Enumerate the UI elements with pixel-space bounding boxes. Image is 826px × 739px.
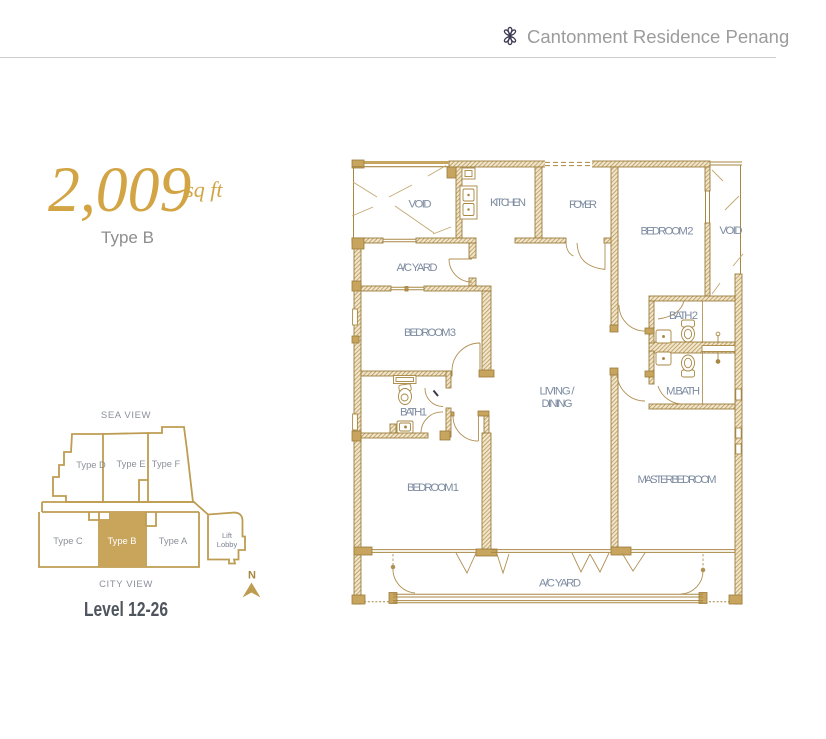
- svg-text:DINING: DINING: [542, 398, 573, 410]
- svg-text:Type F: Type F: [152, 459, 181, 469]
- svg-text:Type A: Type A: [159, 536, 188, 546]
- svg-text:Lift: Lift: [222, 531, 233, 540]
- svg-text:BEDROOM 3: BEDROOM 3: [404, 327, 456, 339]
- svg-text:BATH 2: BATH 2: [669, 310, 698, 322]
- svg-text:Type D: Type D: [76, 460, 106, 470]
- svg-text:Lobby: Lobby: [217, 540, 238, 549]
- svg-text:VOID: VOID: [409, 199, 432, 211]
- svg-text:N: N: [248, 570, 256, 582]
- svg-text:SEA VIEW: SEA VIEW: [101, 410, 151, 421]
- svg-text:BATH 1: BATH 1: [400, 407, 427, 419]
- svg-text:Type B: Type B: [108, 536, 137, 546]
- svg-text:M.BATH: M.BATH: [666, 386, 700, 398]
- svg-text:KITCHEN: KITCHEN: [490, 197, 526, 209]
- svg-text:A/C YARD: A/C YARD: [539, 578, 581, 590]
- svg-text:BEDROOM 1: BEDROOM 1: [407, 482, 459, 494]
- svg-text:A/C YARD: A/C YARD: [397, 262, 438, 274]
- svg-text:MASTERBEDROOM: MASTERBEDROOM: [638, 474, 717, 486]
- svg-text:LIVING /: LIVING /: [540, 386, 576, 398]
- svg-text:Type C: Type C: [53, 536, 83, 546]
- svg-text:Type E: Type E: [117, 459, 146, 469]
- svg-text:VOID: VOID: [720, 225, 743, 237]
- svg-text:FOYER: FOYER: [569, 199, 597, 211]
- svg-text:BEDROOM 2: BEDROOM 2: [641, 226, 694, 238]
- svg-text:Level 12-26: Level 12-26: [84, 599, 168, 621]
- svg-text:CITY VIEW: CITY VIEW: [99, 579, 153, 590]
